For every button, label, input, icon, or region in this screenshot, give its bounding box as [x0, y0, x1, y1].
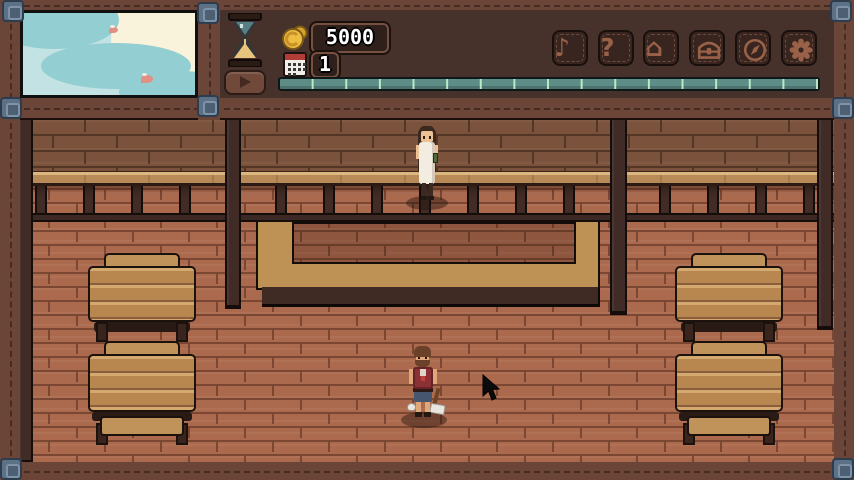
play-speed-button[interactable] [224, 70, 266, 95]
bed-footboard [687, 416, 771, 436]
music-button[interactable]: ♪ [552, 30, 588, 66]
inn-room-scene [20, 118, 834, 462]
bed-mattress [675, 354, 783, 412]
sky-viewport [20, 10, 198, 98]
innkeeper-sack [407, 403, 416, 411]
guest-leg [429, 183, 433, 197]
bed-leg [176, 322, 188, 342]
day-progress-bar [278, 77, 820, 91]
guest-arm [416, 145, 419, 159]
frame-bottom [0, 462, 854, 480]
frame-top [0, 0, 854, 10]
guest-face [421, 131, 433, 142]
question-mark-icon: ? [600, 32, 615, 64]
calendar-icon [283, 52, 307, 77]
frame-left [0, 0, 20, 480]
chest-icon [696, 37, 722, 63]
metal-corner-bracket [0, 97, 22, 119]
compass-icon [742, 37, 768, 63]
metal-corner-bracket [197, 95, 219, 117]
bird [109, 27, 118, 33]
guest-leg [422, 183, 426, 197]
bird [141, 75, 153, 83]
guest-hair-fringe [420, 126, 434, 131]
character-shadow [406, 196, 448, 210]
game-screen: 5000 1 ♪ ? ⌂ [0, 0, 854, 480]
guest-held-item [433, 153, 438, 163]
storage-button[interactable] [689, 30, 725, 66]
bed-mattress [675, 266, 783, 322]
innkeeper-vest [413, 367, 433, 389]
day-counter: 1 [311, 52, 339, 78]
frame-divider [20, 98, 834, 120]
frame-right [834, 0, 854, 480]
music-note-icon: ♪ [554, 32, 570, 64]
guest-dress [419, 142, 435, 184]
bed-leg [96, 322, 108, 342]
settings-button[interactable] [781, 30, 817, 66]
metal-corner-bracket [0, 458, 22, 480]
coin-icon [282, 25, 308, 51]
bed-mattress [88, 354, 196, 412]
bed-mattress [88, 266, 196, 322]
innkeeper-leg [416, 401, 421, 413]
metal-corner-bracket [830, 0, 852, 22]
innkeeper-arm [409, 369, 413, 384]
home-button[interactable]: ⌂ [643, 30, 679, 66]
bed[interactable] [88, 341, 196, 451]
bed-footboard [100, 416, 184, 436]
bed-leg [763, 322, 775, 342]
character-innkeeper[interactable] [406, 346, 440, 430]
metal-corner-bracket [832, 458, 854, 480]
mouse-cursor [482, 374, 502, 402]
metal-corner-bracket [2, 0, 24, 22]
money-counter: 5000 [311, 23, 389, 53]
bed-leg [683, 322, 695, 342]
character-guest-balcony[interactable] [412, 122, 442, 210]
innkeeper-leg [425, 401, 430, 413]
metal-corner-bracket [832, 97, 854, 119]
house-icon: ⌂ [645, 32, 663, 64]
innkeeper-beard [415, 360, 430, 367]
metal-corner-bracket [197, 2, 219, 24]
map-button[interactable] [735, 30, 771, 66]
calendar-grid [288, 63, 291, 66]
gear-icon [788, 37, 814, 63]
bed[interactable] [675, 341, 783, 451]
help-button[interactable]: ? [598, 30, 634, 66]
innkeeper-arm [433, 369, 437, 384]
progress-ticks [280, 79, 818, 89]
hourglass-icon [228, 13, 262, 67]
innkeeper-hair [414, 346, 431, 357]
innkeeper-shorts [414, 391, 432, 402]
